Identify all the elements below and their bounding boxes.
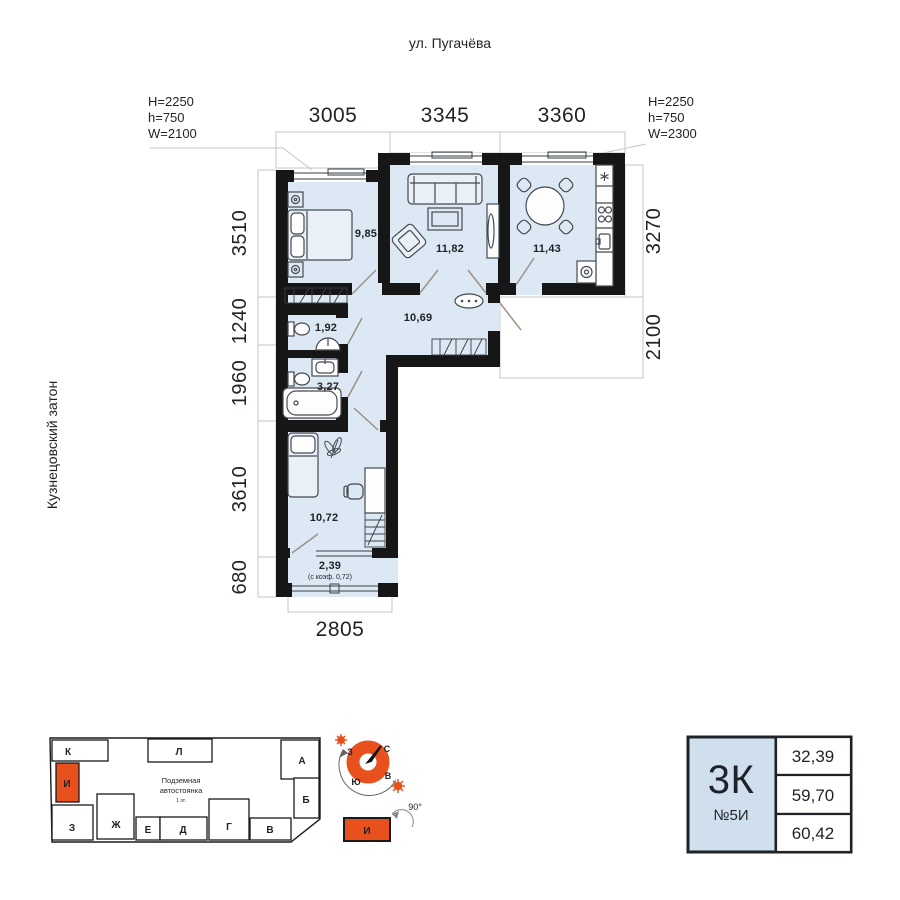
area-value-living: 32,39: [792, 747, 835, 766]
spec-left-H: H=2250: [148, 94, 194, 109]
floorplan-canvas: ул. Пугачёва Кузнецовский затон 3005 334…: [0, 0, 900, 900]
window-spec-right: H=2250 h=750 W=2300: [648, 94, 697, 141]
room-label-bedroom2: 10,72: [310, 512, 339, 524]
site-block-label: Е: [145, 825, 152, 836]
site-block-D[interactable]: Д: [160, 817, 207, 840]
dim-right-2: 2100: [643, 314, 665, 361]
sun-icon: [391, 779, 405, 793]
dim-top-3: 3360: [538, 104, 587, 127]
parking-label-1: Подземная: [162, 776, 201, 785]
floorplan-page: ул. Пугачёва Кузнецовский затон 3005 334…: [0, 0, 900, 900]
tv-icon: [487, 204, 499, 258]
building-marker[interactable]: И: [344, 818, 390, 841]
desk-icon: [365, 468, 385, 513]
site-block-A[interactable]: А: [281, 740, 319, 779]
site-block-E[interactable]: Е: [136, 817, 160, 840]
room-label-kitchen: 11,43: [533, 243, 561, 255]
room-label-living: 11,82: [436, 243, 464, 255]
room-label-bath: 3,27: [317, 381, 339, 393]
site-block-label: Ж: [110, 820, 121, 831]
parking-label-2: автостоянка: [160, 786, 203, 795]
toilet-icon: [288, 372, 310, 386]
compass-west: З: [347, 747, 353, 757]
dim-left-5: 680: [229, 560, 251, 595]
room-label-bedroom: 9,85: [355, 228, 377, 240]
doorbell-icon: [455, 294, 483, 308]
apartment-type: 3К: [708, 758, 755, 802]
site-block-label: А: [298, 756, 305, 767]
building-marker-label: И: [363, 826, 370, 837]
kitchen-window-icon: [522, 152, 593, 165]
rotation-degrees: 90°: [408, 802, 422, 812]
site-block-V[interactable]: В: [250, 818, 291, 840]
bed-icon: [288, 210, 352, 260]
dim-bottom: 2805: [316, 618, 365, 641]
dim-top-2: 3345: [421, 104, 470, 127]
spec-left-h: h=750: [148, 110, 185, 125]
toilet-icon: [288, 322, 310, 336]
dim-left-4: 3610: [229, 466, 251, 513]
site-block-label: В: [266, 825, 273, 836]
dim-left-3: 1960: [229, 360, 251, 407]
dim-right-1: 3270: [643, 208, 665, 255]
living-window-icon: [410, 152, 482, 165]
compass-north: С: [384, 744, 391, 754]
site-block-label: И: [63, 779, 70, 790]
rotation-indicator: 90°: [392, 802, 422, 827]
site-block-L[interactable]: Л: [148, 739, 212, 762]
site-block-G[interactable]: Г: [209, 799, 249, 840]
spec-right-W: W=2300: [648, 126, 697, 141]
site-block-B[interactable]: Б: [294, 778, 319, 818]
dim-left-2: 1240: [229, 298, 251, 345]
room-label-balcony: 2,39: [319, 560, 341, 572]
site-block-label: З: [69, 823, 75, 834]
spec-right-h: h=750: [648, 110, 685, 125]
compass: С З Ю В: [335, 734, 405, 795]
room-label-balcony-note: (с коэф. 0,72): [308, 574, 352, 581]
site-block-label: Б: [302, 795, 309, 806]
area-value-base: 59,70: [792, 786, 835, 805]
spec-right-H: H=2250: [648, 94, 694, 109]
site-block-label: Д: [179, 825, 186, 836]
site-block-Zh[interactable]: Ж: [97, 794, 134, 839]
site-block-label: Л: [175, 747, 182, 758]
kitchen-counter-icon: [596, 165, 613, 286]
washer-icon: [577, 261, 596, 283]
sofa-icon: [408, 174, 482, 204]
dining-table-icon: [526, 187, 564, 225]
bedroom-window-icon: [294, 169, 366, 182]
info-card[interactable]: 3К №5И 32,39 59,70 60,42: [688, 737, 851, 852]
site-block-I-highlighted[interactable]: И: [56, 763, 79, 802]
site-block-K[interactable]: К: [52, 740, 108, 761]
compass-south: Ю: [351, 777, 360, 787]
area-value-total: 60,42: [792, 824, 835, 843]
street-label: ул. Пугачёва: [409, 35, 491, 51]
room-label-wc: 1,92: [315, 322, 337, 334]
dim-left-1: 3510: [229, 210, 251, 257]
site-block-Z[interactable]: З: [52, 805, 93, 840]
window-spec-left: H=2250 h=750 W=2100: [148, 94, 197, 141]
site-block-label: К: [65, 747, 72, 758]
bath-sink-icon: [312, 359, 338, 376]
parking-label-3: 1 эт.: [176, 798, 186, 804]
dim-top-1: 3005: [309, 104, 358, 127]
district-label: Кузнецовский затон: [44, 381, 60, 509]
compass-east: В: [385, 771, 392, 781]
bed2-icon: [288, 433, 318, 497]
site-plan: К Л А И З Ж Е Д: [50, 738, 320, 842]
sun-icon: [335, 734, 347, 746]
room-label-hall: 10,69: [404, 312, 433, 324]
site-block-label: Г: [226, 822, 232, 833]
apartment-number: №5И: [713, 807, 748, 824]
spec-left-W: W=2100: [148, 126, 197, 141]
